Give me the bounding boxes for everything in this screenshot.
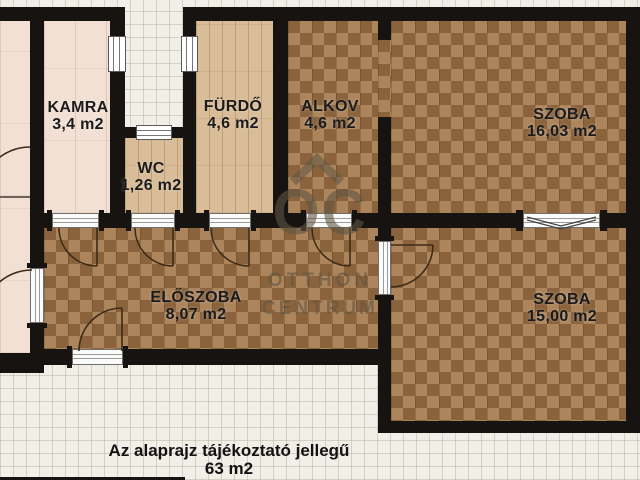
door-jamb bbox=[600, 210, 607, 231]
door-jamb bbox=[375, 295, 394, 300]
door-jamb bbox=[123, 346, 128, 368]
room-area: 4,6 m2 bbox=[260, 115, 400, 132]
caption-line1: Az alaprajz tájékoztató jellegű bbox=[59, 442, 399, 460]
door-wc bbox=[131, 213, 175, 228]
room-label-szoba-15: SZOBA 15,00 m2 bbox=[492, 291, 632, 325]
wall bbox=[378, 7, 391, 40]
room-area: 8,07 m2 bbox=[116, 306, 276, 323]
room-label-kamra: KAMRA 3,4 m2 bbox=[8, 99, 148, 133]
room-name: SZOBA bbox=[492, 291, 632, 308]
room-name: ELŐSZOBA bbox=[116, 289, 276, 306]
door-jamb bbox=[27, 263, 47, 268]
room-label-szoba-16: SZOBA 16,03 m2 bbox=[492, 106, 632, 140]
room-name: SZOBA bbox=[492, 106, 632, 123]
double-door-szoba bbox=[523, 213, 600, 228]
wall bbox=[183, 7, 640, 21]
window-kamra bbox=[108, 36, 126, 72]
room-area: 16,03 m2 bbox=[492, 123, 632, 140]
wall bbox=[378, 421, 640, 433]
door-jamb bbox=[175, 210, 180, 231]
door-kamra bbox=[52, 213, 99, 228]
door-left-room bbox=[30, 268, 44, 323]
room-name: KAMRA bbox=[8, 99, 148, 116]
door-jamb bbox=[375, 236, 394, 241]
room-label-eloszoba: ELŐSZOBA 8,07 m2 bbox=[116, 289, 276, 323]
room-area: 15,00 m2 bbox=[492, 308, 632, 325]
caption: Az alaprajz tájékoztató jellegű 63 m2 bbox=[59, 442, 399, 478]
wall bbox=[378, 117, 391, 228]
caption-line2: 63 m2 bbox=[59, 460, 399, 478]
door-jamb bbox=[352, 210, 357, 231]
left-room-divider bbox=[0, 196, 30, 198]
room-label-wc: WC 1,26 m2 bbox=[81, 160, 221, 194]
room-name: ALKOV bbox=[260, 98, 400, 115]
door-jamb bbox=[251, 210, 256, 231]
door-jamb bbox=[204, 210, 209, 231]
door-jamb bbox=[516, 210, 523, 231]
door-jamb bbox=[301, 210, 306, 231]
door-jamb bbox=[99, 210, 104, 231]
door-furdo bbox=[209, 213, 251, 228]
room-area: 1,26 m2 bbox=[81, 177, 221, 194]
room-floor-left-lower bbox=[0, 198, 30, 353]
wall bbox=[0, 353, 44, 373]
door-jamb bbox=[27, 323, 47, 328]
door-jamb bbox=[126, 210, 131, 231]
door-jamb bbox=[47, 210, 52, 231]
wall bbox=[626, 7, 640, 433]
room-label-alkov: ALKOV 4,6 m2 bbox=[260, 98, 400, 132]
door-szoba-15 bbox=[378, 241, 391, 295]
wall bbox=[0, 7, 125, 21]
door-alkov bbox=[306, 213, 352, 228]
room-area: 3,4 m2 bbox=[8, 116, 148, 133]
floorplan-canvas: OC OTTHON CENTRUM KAMRA 3,4 m2 WC 1,26 m… bbox=[0, 0, 640, 480]
door-jamb bbox=[67, 346, 72, 368]
room-name: WC bbox=[81, 160, 221, 177]
window-furdo bbox=[181, 36, 198, 72]
door-entrance bbox=[72, 349, 123, 365]
